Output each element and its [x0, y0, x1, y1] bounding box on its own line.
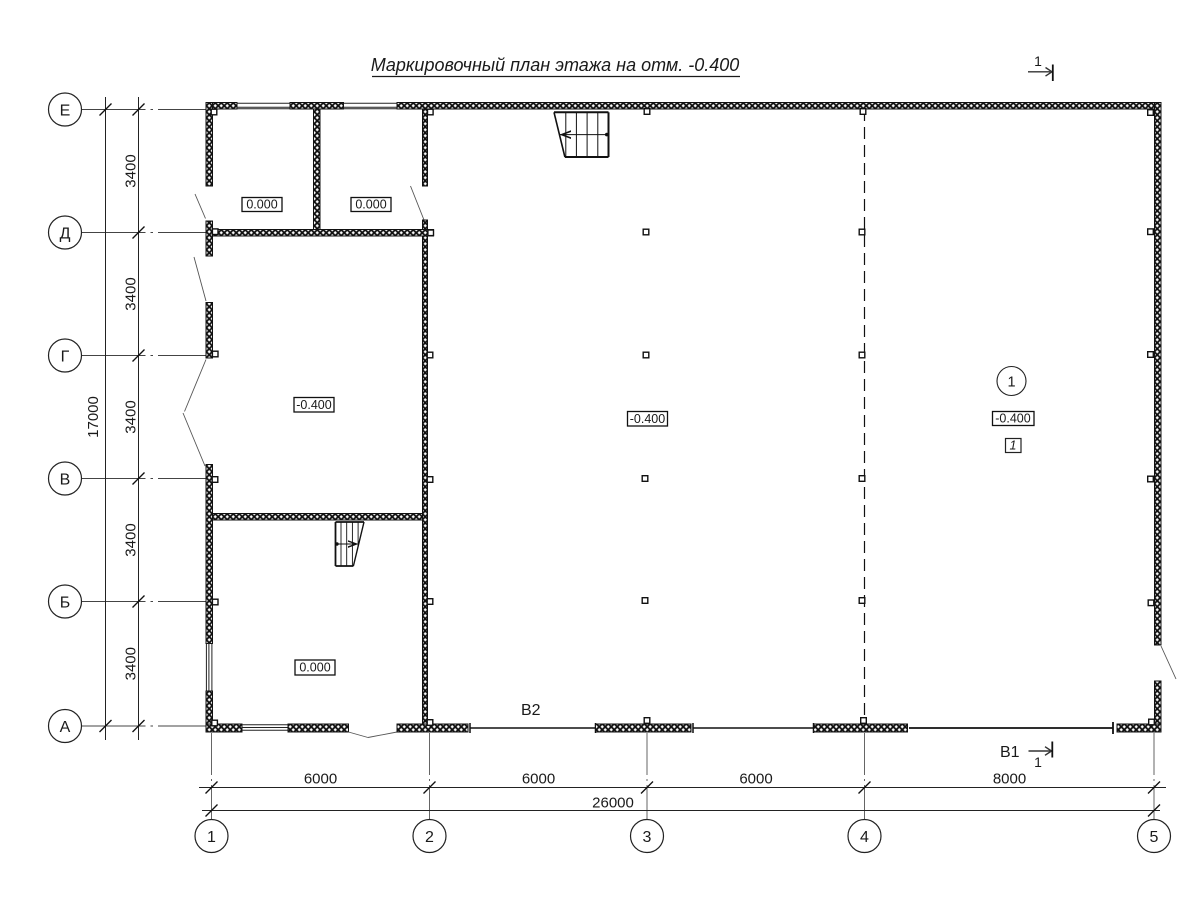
svg-text:1: 1 — [207, 829, 216, 846]
svg-text:0.000: 0.000 — [246, 198, 277, 212]
svg-text:6000: 6000 — [739, 771, 772, 788]
svg-text:5: 5 — [1150, 829, 1159, 846]
svg-text:17000: 17000 — [85, 396, 102, 438]
svg-text:1: 1 — [1010, 439, 1017, 453]
svg-text:В1: В1 — [1000, 744, 1020, 761]
svg-text:Б: Б — [60, 595, 71, 612]
svg-text:0.000: 0.000 — [355, 198, 386, 212]
svg-text:3400: 3400 — [123, 647, 140, 680]
svg-text:-0.400: -0.400 — [296, 398, 331, 412]
svg-text:-0.400: -0.400 — [630, 412, 665, 426]
svg-text:А: А — [60, 719, 71, 736]
svg-text:1: 1 — [1034, 754, 1042, 770]
svg-text:Г: Г — [61, 349, 70, 366]
svg-text:0.000: 0.000 — [299, 661, 330, 675]
svg-text:2: 2 — [425, 829, 434, 846]
svg-text:Е: Е — [60, 103, 71, 120]
svg-text:3400: 3400 — [123, 277, 140, 310]
svg-text:6000: 6000 — [304, 771, 337, 788]
svg-text:4: 4 — [860, 829, 869, 846]
svg-text:Маркировочный план этажа на от: Маркировочный план этажа на отм. -0.400 — [371, 55, 740, 75]
svg-text:3400: 3400 — [123, 154, 140, 187]
svg-text:8000: 8000 — [993, 771, 1026, 788]
svg-text:-0.400: -0.400 — [995, 412, 1030, 426]
svg-text:В2: В2 — [521, 702, 541, 719]
svg-text:3400: 3400 — [123, 523, 140, 556]
svg-text:3400: 3400 — [123, 400, 140, 433]
svg-text:В: В — [60, 472, 71, 489]
svg-text:Д: Д — [60, 226, 71, 243]
svg-text:6000: 6000 — [522, 771, 555, 788]
svg-text:1: 1 — [1007, 375, 1015, 391]
svg-text:1: 1 — [1034, 53, 1042, 69]
svg-text:26000: 26000 — [592, 795, 634, 812]
svg-text:3: 3 — [643, 829, 652, 846]
